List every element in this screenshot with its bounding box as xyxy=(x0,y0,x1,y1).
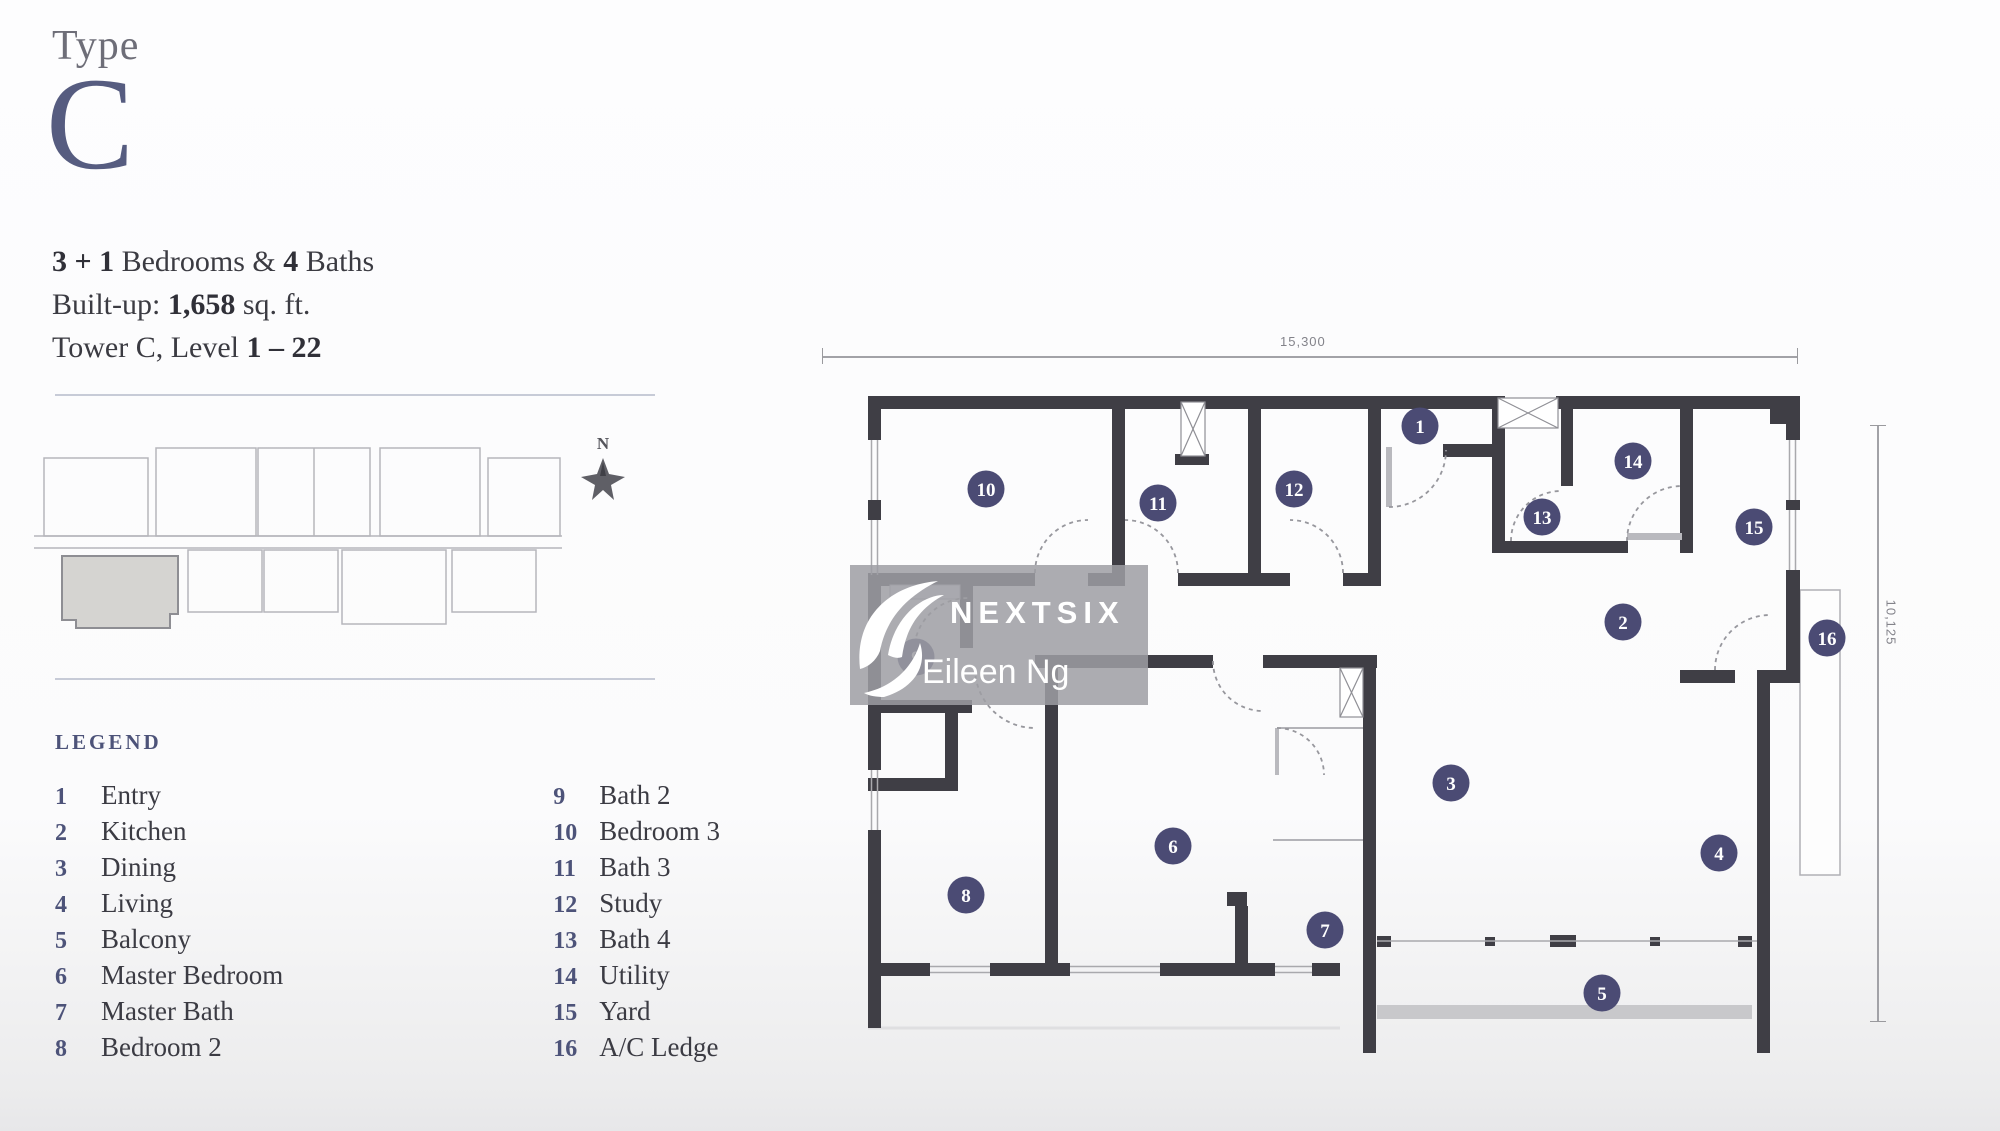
legend-item-5: 5Balcony xyxy=(55,924,283,960)
balcony-slab xyxy=(1377,1005,1752,1019)
legend-item-number: 5 xyxy=(55,928,101,955)
watermark: NEXTSIX Eileen Ng xyxy=(850,565,1148,705)
room-marker-number: 7 xyxy=(1320,921,1330,942)
legend-item-number: 12 xyxy=(553,892,599,919)
key-plan-highlighted-unit xyxy=(62,556,178,628)
legend-item-15: 15Yard xyxy=(553,996,720,1032)
key-plan xyxy=(28,438,568,656)
dimension-tick xyxy=(1870,425,1886,426)
dimension-width-label: 15,300 xyxy=(1280,334,1326,349)
legend-column-2: 9Bath 210Bedroom 311Bath 312Study13Bath … xyxy=(553,780,720,1068)
dimension-depth-label: 10,125 xyxy=(1884,588,1899,658)
legend-item-label: Study xyxy=(599,888,662,919)
legend-item-label: Balcony xyxy=(101,924,191,955)
north-label: N xyxy=(578,434,628,454)
unit-info-builtup: Built-up: 1,658 sq. ft. xyxy=(52,283,374,326)
room-marker-number: 11 xyxy=(1149,494,1167,515)
legend-title: LEGEND xyxy=(55,730,162,755)
room-marker-number: 3 xyxy=(1446,774,1456,795)
room-marker-number: 16 xyxy=(1818,629,1837,650)
legend-item-3: 3Dining xyxy=(55,852,283,888)
legend-item-number: 15 xyxy=(553,1000,599,1027)
legend-item-label: Dining xyxy=(101,852,176,883)
legend-item-16: 16A/C Ledge xyxy=(553,1032,720,1068)
room-marker-number: 14 xyxy=(1624,452,1644,473)
legend-item-label: Master Bedroom xyxy=(101,960,283,991)
room-marker-number: 15 xyxy=(1745,518,1764,539)
legend-item-label: A/C Ledge xyxy=(599,1032,718,1063)
legend-item-number: 14 xyxy=(553,964,599,991)
unit-info-beds: 3 + 1 Bedrooms & 4 Baths xyxy=(52,240,374,283)
divider-top xyxy=(55,394,655,396)
legend-item-number: 9 xyxy=(553,784,599,811)
unit-info-tower: Tower C, Level 1 – 22 xyxy=(52,326,374,369)
legend-item-label: Bedroom 2 xyxy=(101,1032,222,1063)
legend-item-number: 4 xyxy=(55,892,101,919)
legend-item-number: 8 xyxy=(55,1036,101,1063)
legend: 1Entry2Kitchen3Dining4Living5Balcony6Mas… xyxy=(55,780,510,1068)
north-indicator: N xyxy=(578,434,628,509)
legend-item-label: Bath 3 xyxy=(599,852,670,883)
dimension-line-depth xyxy=(1877,425,1879,1022)
legend-item-13: 13Bath 4 xyxy=(553,924,720,960)
legend-item-1: 1Entry xyxy=(55,780,283,816)
compass-rose-icon xyxy=(578,454,628,504)
dimension-tick xyxy=(1870,1021,1886,1022)
legend-column-1: 1Entry2Kitchen3Dining4Living5Balcony6Mas… xyxy=(55,780,283,1068)
unit-info: 3 + 1 Bedrooms & 4 Baths Built-up: 1,658… xyxy=(52,240,374,369)
legend-item-8: 8Bedroom 2 xyxy=(55,1032,283,1068)
legend-item-2: 2Kitchen xyxy=(55,816,283,852)
legend-item-label: Bedroom 3 xyxy=(599,816,720,847)
legend-item-number: 11 xyxy=(553,856,599,883)
watermark-agent: Eileen Ng xyxy=(922,653,1069,692)
legend-item-number: 7 xyxy=(55,1000,101,1027)
legend-item-label: Master Bath xyxy=(101,996,234,1027)
legend-item-11: 11Bath 3 xyxy=(553,852,720,888)
room-marker-number: 8 xyxy=(961,886,971,907)
legend-item-label: Bath 2 xyxy=(599,780,670,811)
legend-item-label: Yard xyxy=(599,996,650,1027)
interior-partitions xyxy=(1273,728,1363,840)
legend-item-14: 14Utility xyxy=(553,960,720,996)
legend-item-label: Entry xyxy=(101,780,161,811)
dimension-tick xyxy=(1797,348,1798,364)
legend-item-number: 1 xyxy=(55,784,101,811)
watermark-brand: NEXTSIX xyxy=(950,595,1125,631)
room-marker-number: 13 xyxy=(1533,508,1552,529)
legend-item-7: 7Master Bath xyxy=(55,996,283,1032)
dimension-tick xyxy=(822,348,823,364)
legend-item-label: Utility xyxy=(599,960,670,991)
room-marker-number: 12 xyxy=(1285,480,1304,501)
room-marker-number: 1 xyxy=(1415,417,1425,438)
legend-item-number: 3 xyxy=(55,856,101,883)
legend-item-number: 16 xyxy=(553,1036,599,1063)
floorplan-page: { "header": { "type_label": "Type", "typ… xyxy=(0,0,2000,1131)
walls xyxy=(868,396,1800,1053)
divider-bottom xyxy=(55,678,655,680)
legend-item-10: 10Bedroom 3 xyxy=(553,816,720,852)
floor-plan: 12345678910111213141516 xyxy=(850,370,1860,1070)
legend-item-6: 6Master Bedroom xyxy=(55,960,283,996)
legend-item-number: 10 xyxy=(553,820,599,847)
legend-item-number: 13 xyxy=(553,928,599,955)
legend-item-9: 9Bath 2 xyxy=(553,780,720,816)
legend-item-12: 12Study xyxy=(553,888,720,924)
unit-type-letter: C xyxy=(46,58,134,190)
room-marker-number: 5 xyxy=(1597,984,1607,1005)
room-marker-number: 4 xyxy=(1714,844,1724,865)
legend-item-number: 6 xyxy=(55,964,101,991)
room-marker-number: 6 xyxy=(1168,837,1178,858)
legend-item-4: 4Living xyxy=(55,888,283,924)
legend-item-label: Bath 4 xyxy=(599,924,670,955)
windows xyxy=(872,440,1796,973)
legend-item-label: Kitchen xyxy=(101,816,186,847)
legend-item-label: Living xyxy=(101,888,173,919)
room-marker-number: 10 xyxy=(977,480,996,501)
legend-item-number: 2 xyxy=(55,820,101,847)
dimension-line-width xyxy=(822,356,1798,358)
room-marker-number: 2 xyxy=(1618,613,1628,634)
